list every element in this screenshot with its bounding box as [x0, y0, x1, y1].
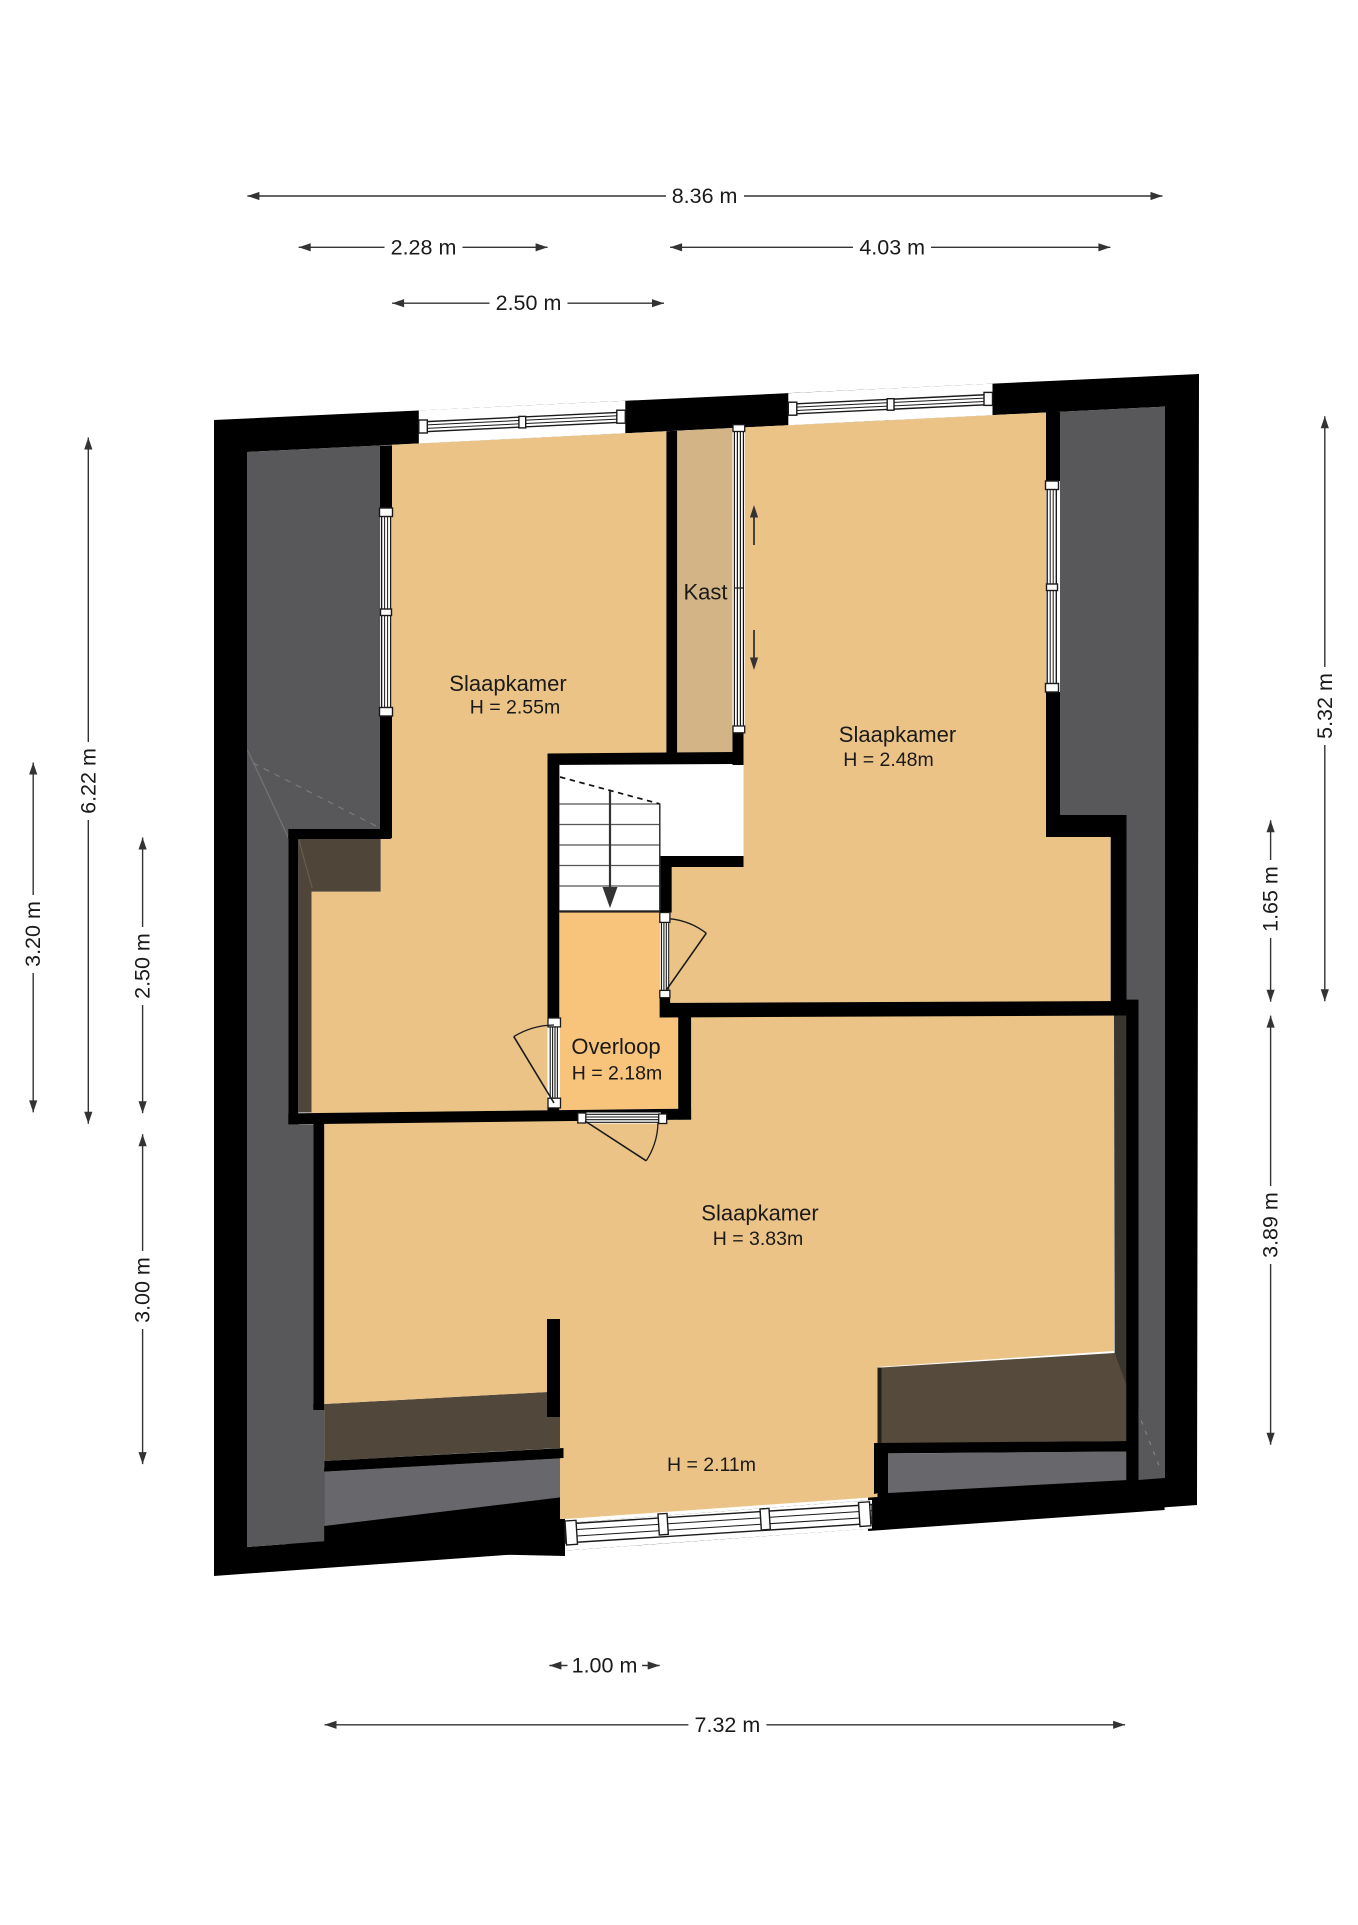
svg-text:Overloop: Overloop — [571, 1034, 660, 1059]
svg-text:8.36 m: 8.36 m — [672, 184, 738, 208]
svg-text:3.20 m: 3.20 m — [21, 901, 45, 967]
svg-text:2.50 m: 2.50 m — [131, 933, 155, 999]
svg-text:3.00 m: 3.00 m — [131, 1257, 155, 1323]
svg-text:3.89 m: 3.89 m — [1259, 1192, 1283, 1258]
svg-text:Slaapkamer: Slaapkamer — [839, 722, 956, 747]
svg-text:1.00 m: 1.00 m — [572, 1654, 638, 1678]
svg-text:5.32 m: 5.32 m — [1313, 673, 1337, 739]
svg-text:Slaapkamer: Slaapkamer — [701, 1201, 818, 1226]
svg-text:H = 2.18m: H = 2.18m — [572, 1063, 663, 1085]
svg-text:1.65 m: 1.65 m — [1259, 866, 1283, 932]
svg-text:2.28 m: 2.28 m — [391, 235, 457, 259]
svg-text:Kast: Kast — [683, 580, 727, 605]
svg-text:2.50 m: 2.50 m — [496, 291, 562, 315]
svg-text:Slaapkamer: Slaapkamer — [449, 671, 566, 696]
svg-text:4.03 m: 4.03 m — [859, 235, 925, 259]
svg-text:6.22 m: 6.22 m — [76, 748, 100, 814]
svg-text:H = 3.83m: H = 3.83m — [713, 1228, 804, 1250]
svg-text:H = 2.11m: H = 2.11m — [667, 1454, 756, 1476]
svg-text:7.32 m: 7.32 m — [695, 1713, 761, 1737]
svg-text:H = 2.55m: H = 2.55m — [470, 697, 561, 719]
svg-text:H = 2.48m: H = 2.48m — [843, 749, 934, 771]
